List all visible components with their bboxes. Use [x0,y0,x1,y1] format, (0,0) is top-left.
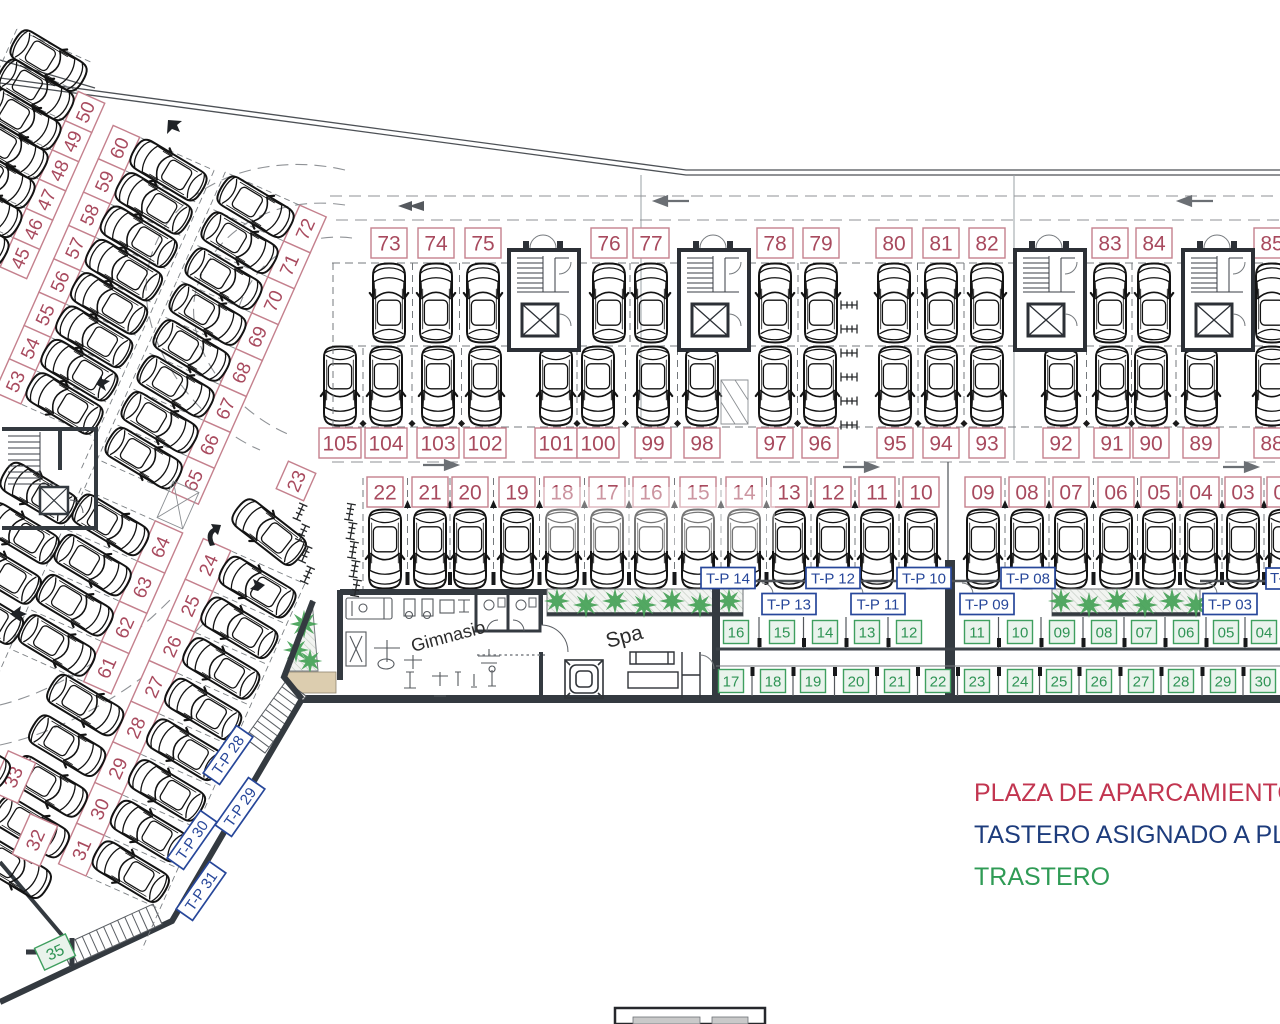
svg-text:23: 23 [969,673,986,690]
svg-text:08: 08 [1096,624,1113,641]
svg-text:100: 100 [580,433,615,456]
svg-text:05: 05 [1218,624,1235,641]
svg-text:14: 14 [817,624,834,641]
svg-text:95: 95 [883,433,906,456]
svg-text:26: 26 [1091,673,1108,690]
svg-text:27: 27 [1133,673,1150,690]
svg-text:05: 05 [1147,482,1170,505]
svg-text:24: 24 [1012,673,1029,690]
svg-text:84: 84 [1142,233,1166,256]
svg-text:12: 12 [901,624,918,641]
svg-text:96: 96 [808,433,831,456]
svg-text:83: 83 [1098,233,1121,256]
svg-text:19: 19 [805,673,822,690]
svg-text:93: 93 [975,433,998,456]
svg-text:21: 21 [418,482,441,505]
svg-text:07: 07 [1136,624,1153,641]
svg-text:92: 92 [1049,433,1072,456]
svg-text:02: 02 [1273,482,1280,505]
svg-text:04: 04 [1189,482,1213,505]
svg-text:81: 81 [929,233,952,256]
svg-text:76: 76 [597,233,620,256]
svg-text:89: 89 [1189,433,1212,456]
svg-text:11: 11 [866,482,888,505]
svg-text:85: 85 [1260,233,1280,256]
svg-text:75: 75 [471,233,494,256]
svg-text:94: 94 [929,433,953,456]
svg-text:79: 79 [809,233,832,256]
svg-text:16: 16 [728,624,745,641]
svg-text:T-P 13: T-P 13 [767,596,811,613]
svg-text:29: 29 [1215,673,1232,690]
svg-text:20: 20 [848,673,865,690]
svg-text:91: 91 [1100,433,1123,456]
svg-text:25: 25 [1051,673,1068,690]
svg-text:06: 06 [1104,482,1127,505]
svg-text:08: 08 [1015,482,1038,505]
svg-text:T-: T- [1270,570,1280,587]
svg-text:10: 10 [909,482,932,505]
svg-text:13: 13 [777,482,800,505]
svg-text:10: 10 [1012,624,1029,641]
svg-text:Gimnasio: Gimnasio [409,617,488,656]
svg-text:11: 11 [969,624,985,641]
svg-text:22: 22 [930,673,947,690]
svg-text:T-P 08: T-P 08 [1006,570,1050,587]
svg-text:06: 06 [1178,624,1195,641]
svg-text:17: 17 [723,673,740,690]
svg-text:82: 82 [975,233,998,256]
svg-text:T-P 09: T-P 09 [965,596,1009,613]
svg-text:80: 80 [882,233,905,256]
svg-text:97: 97 [763,433,786,456]
svg-text:28: 28 [1173,673,1190,690]
svg-text:101: 101 [538,433,573,456]
svg-text:03: 03 [1231,482,1254,505]
svg-text:07: 07 [1059,482,1082,505]
svg-text:74: 74 [424,233,448,256]
svg-text:30: 30 [1255,673,1272,690]
svg-text:99: 99 [641,433,664,456]
svg-text:22: 22 [373,482,396,505]
svg-text:Spa: Spa [603,621,645,653]
svg-text:77: 77 [639,233,662,256]
svg-text:90: 90 [1139,433,1162,456]
svg-text:18: 18 [765,673,782,690]
svg-text:102: 102 [467,433,502,456]
svg-text:T-P 11: T-P 11 [857,596,900,613]
svg-text:104: 104 [368,433,403,456]
svg-text:04: 04 [1256,624,1273,641]
svg-text:09: 09 [1054,624,1071,641]
svg-text:T-P 10: T-P 10 [902,570,946,587]
svg-text:88: 88 [1260,433,1280,456]
svg-text:TRASTERO: TRASTERO [974,863,1110,891]
svg-text:15: 15 [774,624,791,641]
svg-text:09: 09 [971,482,994,505]
svg-text:105: 105 [322,433,357,456]
svg-text:T-P 12: T-P 12 [811,570,855,587]
svg-text:PLAZA DE APARCAMIENTO: PLAZA DE APARCAMIENTO [974,779,1280,807]
svg-text:12: 12 [821,482,844,505]
svg-text:78: 78 [763,233,786,256]
svg-text:21: 21 [889,673,906,690]
svg-text:19: 19 [505,482,528,505]
svg-text:T-P 14: T-P 14 [706,570,750,587]
svg-text:T-P 03: T-P 03 [1208,596,1252,613]
svg-text:20: 20 [458,482,481,505]
svg-text:103: 103 [420,433,455,456]
svg-text:98: 98 [690,433,713,456]
svg-text:TASTERO ASIGNADO A PLAZA: TASTERO ASIGNADO A PLAZA [974,821,1280,849]
svg-text:13: 13 [859,624,876,641]
svg-text:73: 73 [377,233,400,256]
